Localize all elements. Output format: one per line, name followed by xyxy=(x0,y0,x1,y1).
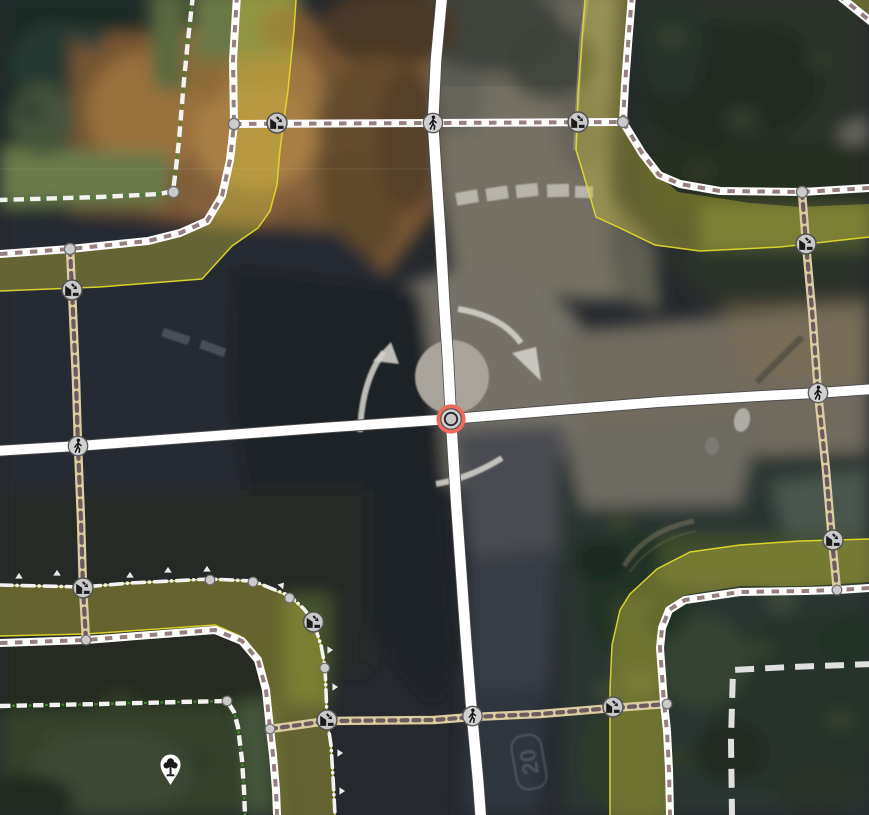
svg-text:20: 20 xyxy=(514,747,544,777)
